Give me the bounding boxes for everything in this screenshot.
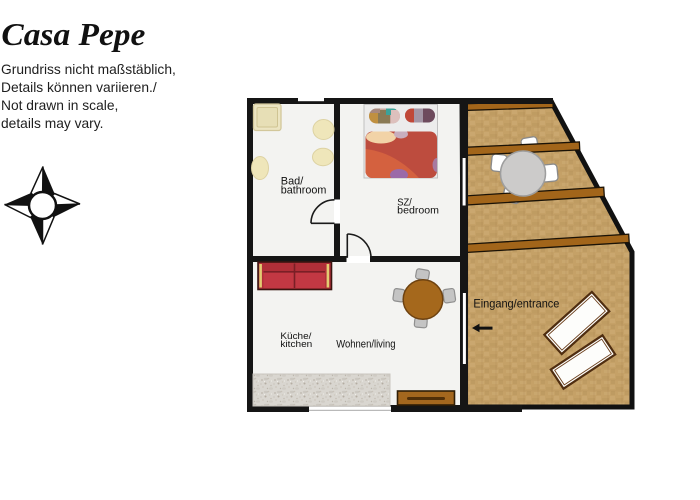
svg-text:Eingang/entrance: Eingang/entrance xyxy=(473,297,559,311)
svg-text:Not drawn in scale,: Not drawn in scale, xyxy=(1,98,118,113)
svg-text:Casa Pepe: Casa Pepe xyxy=(1,17,145,52)
svg-text:bathroom: bathroom xyxy=(281,185,327,197)
svg-text:Details können variieren./: Details können variieren./ xyxy=(1,80,157,95)
svg-text:kitchen: kitchen xyxy=(280,339,312,350)
svg-text:Grundriss nicht maßstäblich,: Grundriss nicht maßstäblich, xyxy=(1,62,176,77)
svg-text:details may vary.: details may vary. xyxy=(1,116,104,131)
svg-text:bedroom: bedroom xyxy=(397,205,439,216)
svg-text:Wohnen/living: Wohnen/living xyxy=(336,339,395,351)
